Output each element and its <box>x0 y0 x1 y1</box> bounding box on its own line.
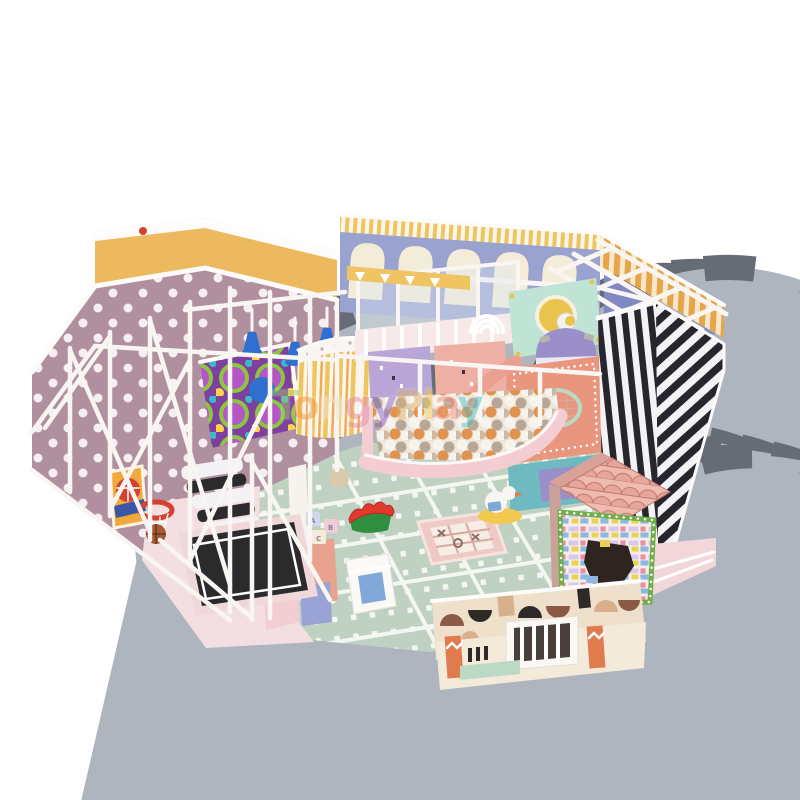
playground-render: A B C <box>0 0 800 800</box>
watermark-text: TongyPlay <box>272 386 552 426</box>
block-letter: C <box>316 535 321 543</box>
toddler-slide <box>346 554 396 614</box>
corner-sign <box>139 227 147 235</box>
block-letter: B <box>328 524 333 532</box>
